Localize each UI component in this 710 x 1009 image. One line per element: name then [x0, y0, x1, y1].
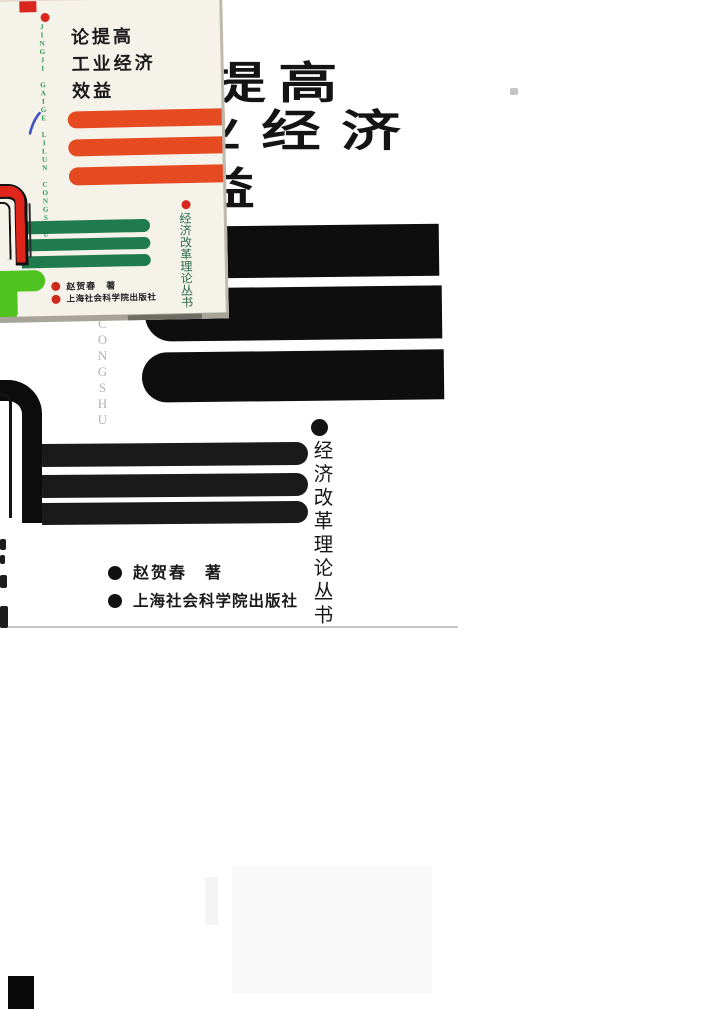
- red-dot-icon: [41, 13, 50, 22]
- inset-title-line-3: 效益: [72, 82, 114, 101]
- green-bar-3: [22, 254, 151, 269]
- series-title-vertical: 经济改革理论丛书: [308, 440, 334, 628]
- inset-title-line-2: 工业经济: [71, 54, 155, 74]
- inset-series-vertical: 经济改革理论丛书: [178, 212, 194, 308]
- publisher-bullet-icon: [108, 594, 122, 608]
- series-dot-icon: [311, 419, 328, 436]
- neighbor-book-green-bar: [0, 270, 45, 292]
- scan-dust-mark: [510, 88, 518, 95]
- neighbor-book-green-corner: [0, 290, 18, 319]
- thin-bar-2: [42, 473, 308, 498]
- inset-publisher-name: 上海社会科学院出版社: [66, 291, 156, 305]
- edge-speck: [0, 539, 6, 550]
- series-romanized-tail: CONGSHU: [94, 316, 110, 428]
- author-bullet-icon: [51, 282, 60, 291]
- inset-right-shadow: [219, 0, 229, 318]
- orange-bar-3: [69, 164, 226, 185]
- cover-bottom-edge: [0, 626, 458, 628]
- inset-author-name: 赵贺春 著: [66, 279, 116, 293]
- author-bullet-icon: [108, 566, 122, 580]
- thin-bar-3: [42, 501, 308, 525]
- green-bar-1: [21, 219, 150, 235]
- neighbor-book-inner-line: [0, 202, 12, 260]
- series-dot-icon: [181, 200, 190, 209]
- black-bar-3: [142, 349, 445, 402]
- inset-cover-photo: JINGJI GAIGE LILUN CONGSHU 论提高 工业经济 效益 经…: [0, 0, 229, 323]
- edge-speck: [0, 575, 7, 588]
- author-name: 赵贺春 著: [133, 559, 223, 583]
- green-bar-2: [21, 237, 150, 252]
- scan-ghost-mark: [232, 866, 432, 994]
- thin-bar-1: [42, 442, 308, 467]
- inset-title-line-1: 论提高: [71, 27, 134, 46]
- black-bar-1: [218, 224, 440, 279]
- scan-ghost-mark: [205, 877, 218, 925]
- pen-mark-icon: [27, 111, 43, 135]
- orange-bar-1: [68, 108, 225, 128]
- red-square-mark: [19, 1, 36, 12]
- orange-bar-2: [68, 136, 225, 156]
- book-cover-scan: 论提高 工业经济 效益 CONGSHU 经济改革理论丛书 赵贺春 著 上海社会科…: [0, 0, 710, 1009]
- edge-speck: [0, 555, 5, 564]
- scan-corner-black-mark: [8, 976, 34, 1009]
- edge-speck: [0, 606, 8, 628]
- publisher-bullet-icon: [51, 295, 60, 304]
- corner-band-inner-line: [0, 393, 12, 518]
- publisher-name: 上海社会科学院出版社: [133, 589, 298, 611]
